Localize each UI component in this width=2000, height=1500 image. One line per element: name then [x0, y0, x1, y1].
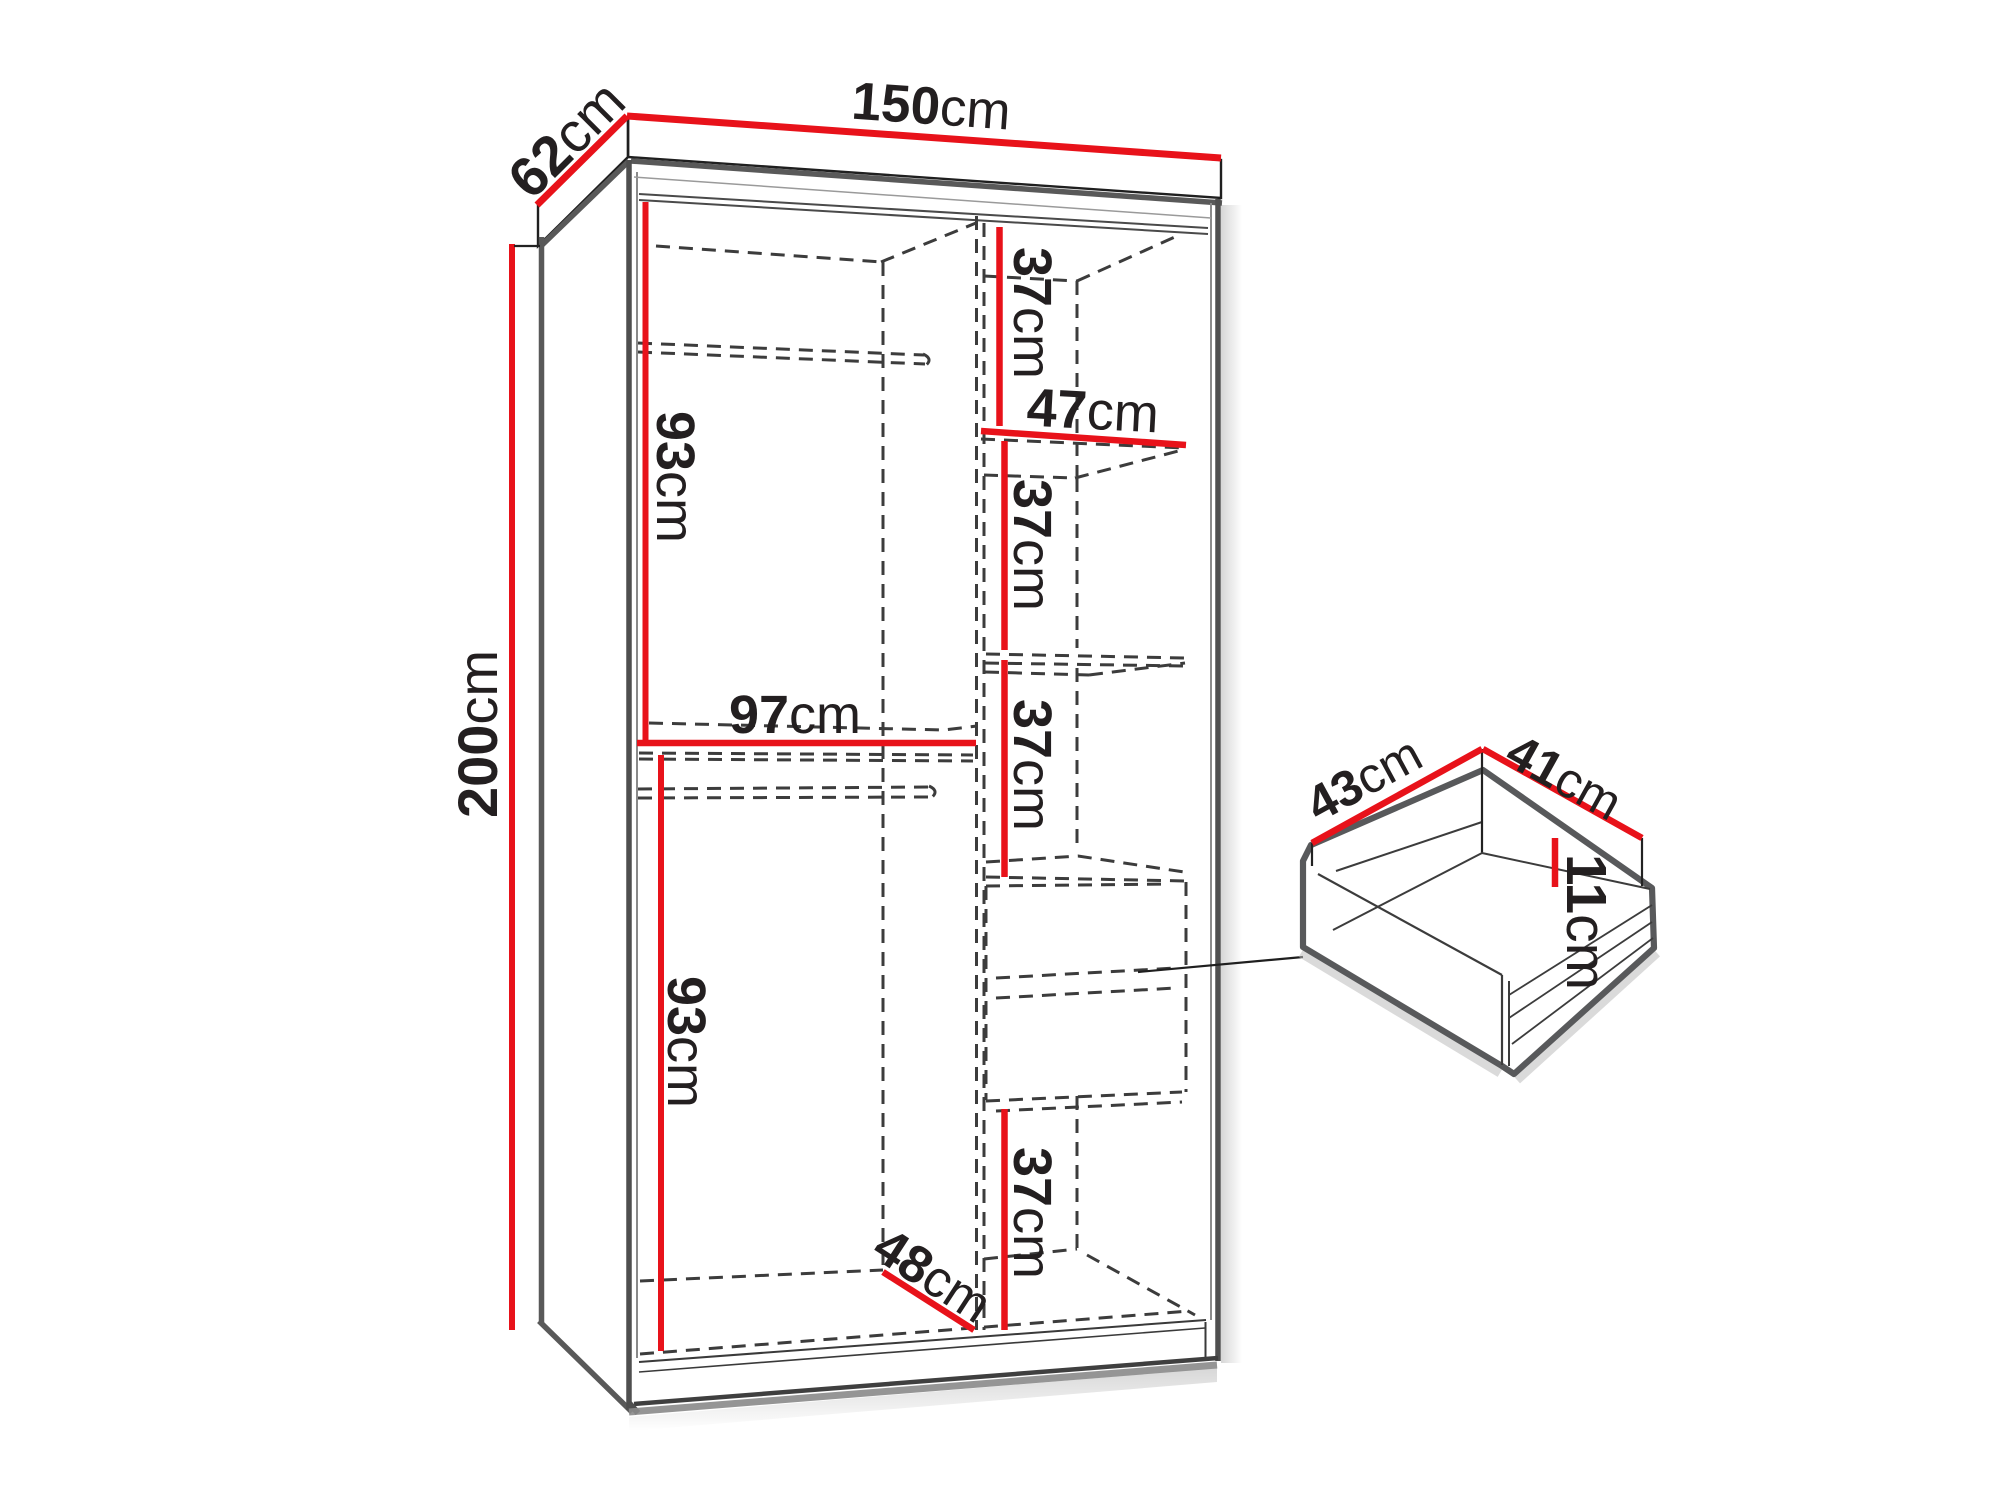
svg-text:37cm: 37cm — [1002, 699, 1062, 831]
svg-text:37cm: 37cm — [1002, 1147, 1062, 1279]
svg-text:37cm: 37cm — [1002, 479, 1062, 611]
svg-text:97cm: 97cm — [729, 685, 861, 745]
svg-text:47cm: 47cm — [1025, 378, 1160, 445]
svg-text:200cm: 200cm — [446, 650, 509, 818]
svg-text:37cm: 37cm — [1002, 247, 1062, 379]
svg-text:11cm: 11cm — [1554, 854, 1618, 990]
svg-text:93cm: 93cm — [645, 411, 705, 543]
svg-text:150cm: 150cm — [850, 72, 1013, 142]
svg-text:93cm: 93cm — [656, 976, 716, 1108]
